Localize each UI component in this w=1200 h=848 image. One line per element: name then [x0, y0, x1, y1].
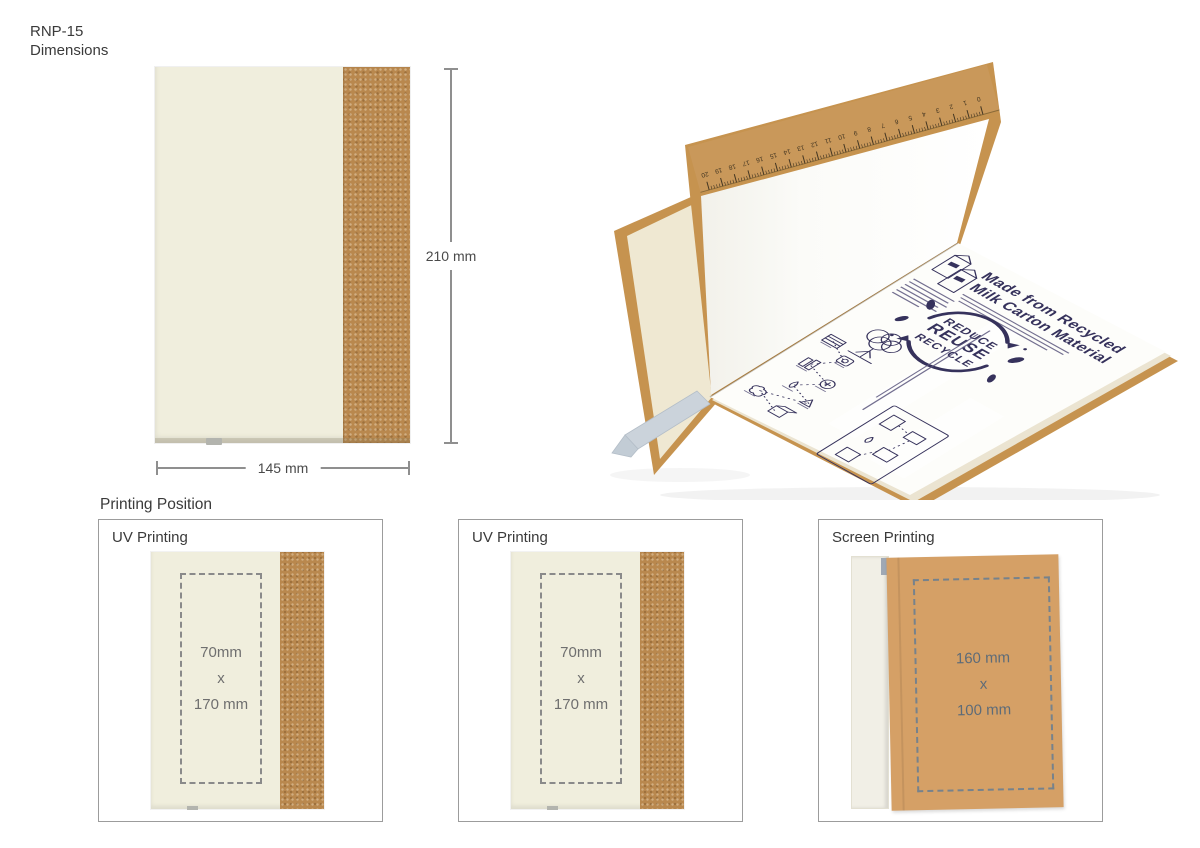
height-dimension: 210 mm: [444, 68, 458, 444]
dimension-cap-bottom: [444, 442, 458, 444]
print-size-line: 170 mm: [554, 692, 608, 718]
print-size-line: x: [577, 666, 585, 692]
page-stack-edge: [851, 556, 889, 809]
print-size-line: 100 mm: [957, 697, 1012, 724]
uv-printing-box-1: UV Printing 70mm x 170 mm: [98, 519, 383, 822]
mini-kraft-page-view: 160 mm x 100 mm: [851, 556, 1061, 809]
page-title: RNP-15 Dimensions: [30, 22, 108, 60]
notebook-clip-tab: [187, 806, 198, 810]
cork-strip: [640, 552, 684, 809]
print-size-line: x: [980, 671, 988, 697]
notebook-front-view: [155, 67, 410, 443]
page-subtitle: Dimensions: [30, 41, 108, 60]
print-size-line: 70mm: [560, 640, 602, 666]
box-label: UV Printing: [472, 529, 548, 546]
print-size-line: 160 mm: [956, 645, 1011, 672]
mini-notebook-front: 70mm x 170 mm: [511, 552, 684, 809]
box-label: UV Printing: [112, 529, 188, 546]
notebook-clip-tab: [206, 438, 222, 445]
cork-strip: [343, 67, 410, 443]
notebook-clip-tab: [547, 806, 558, 810]
print-size-line: 70mm: [200, 640, 242, 666]
kraft-page: 160 mm x 100 mm: [886, 554, 1063, 811]
open-notebook-illustration: 20191817161514131211109876543210: [600, 55, 1180, 500]
box-label: Screen Printing: [832, 529, 935, 546]
printing-position-heading: Printing Position: [100, 496, 212, 514]
print-size-line: x: [217, 666, 225, 692]
print-size-line: 170 mm: [194, 692, 248, 718]
dimension-cap-right: [408, 461, 410, 475]
print-area-rect: 70mm x 170 mm: [180, 573, 262, 784]
uv-printing-box-2: UV Printing 70mm x 170 mm: [458, 519, 743, 822]
cork-strip: [280, 552, 324, 809]
width-label: 145 mm: [246, 458, 321, 478]
notebook-bottom-edge: [155, 438, 410, 443]
mini-notebook-front: 70mm x 170 mm: [151, 552, 324, 809]
product-code: RNP-15: [30, 22, 108, 41]
print-area-rect: 70mm x 170 mm: [540, 573, 622, 784]
spec-sheet: RNP-15 Dimensions 210 mm 145 mm: [0, 0, 1200, 848]
open-notebook-photo: 20191817161514131211109876543210: [600, 55, 1180, 500]
print-area-rect: 160 mm x 100 mm: [913, 576, 1054, 792]
width-dimension: 145 mm: [156, 461, 410, 475]
ground-shadow-left: [610, 468, 750, 482]
page-fold-line: [897, 558, 904, 811]
screen-printing-box: Screen Printing 160 mm x 100 mm: [818, 519, 1103, 822]
height-label: 210 mm: [421, 242, 482, 270]
